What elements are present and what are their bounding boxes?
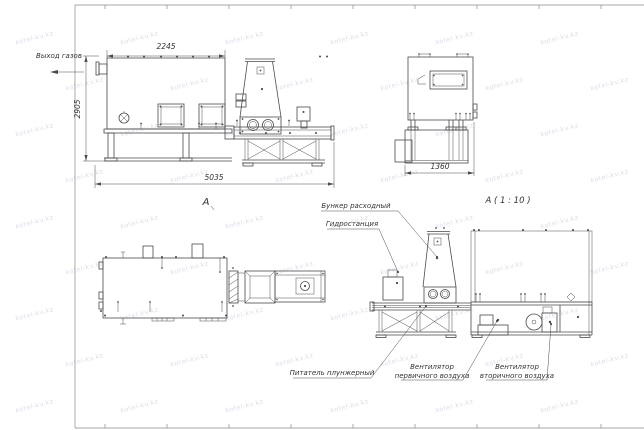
hydraulic-station <box>383 270 403 300</box>
plan-bolt-marks <box>104 256 227 324</box>
technical-drawing: Выход газов 2245 2905 5035 1360 А А ( 1 … <box>0 0 644 430</box>
feed-hopper-detail <box>423 227 456 287</box>
leader-feed-hopper <box>321 211 438 258</box>
section-a-label: А <box>202 197 210 208</box>
dimension-2905 <box>83 56 104 161</box>
feeder-channel <box>225 120 334 140</box>
sheet-frame <box>75 5 644 428</box>
plan-feeder <box>229 267 325 307</box>
feeder-housing-side <box>240 117 281 134</box>
drawing-text: Выход газов 2245 2905 5035 1360 А А ( 1 … <box>36 42 554 380</box>
section-a-tick <box>211 206 214 210</box>
feeder-housing-detail <box>424 287 456 303</box>
secondary-air-fan <box>526 307 557 332</box>
side-ports-front <box>473 104 477 118</box>
secondary-fan-label-1: Вентилятор <box>495 363 539 371</box>
hydraulic-station-label: Гидростанция <box>326 220 378 228</box>
furnace-front <box>408 57 473 120</box>
plan-left-ports <box>99 262 103 312</box>
anchor-diamond <box>567 293 575 301</box>
feed-hopper-side <box>236 59 281 117</box>
dim-2905-text: 2905 <box>73 99 82 118</box>
leader-plunger-feeder <box>293 305 427 378</box>
valve-handwheel <box>119 111 129 123</box>
primary-fan-label-2: первичного воздуха <box>395 372 470 380</box>
gas-outlet-nozzle <box>96 62 107 75</box>
window-latch <box>418 75 426 84</box>
front-side-box <box>395 140 412 162</box>
drawing-sheet: Выход газов 2245 2905 5035 1360 А А ( 1 … <box>0 0 644 430</box>
conveyor-support-frame <box>242 139 325 166</box>
hatch-door-1 <box>158 104 184 127</box>
dim-2245-text: 2245 <box>156 42 175 51</box>
dimension-2245 <box>107 50 225 58</box>
gas-outlet-arrow <box>50 70 84 74</box>
dim-5035-text: 5035 <box>204 173 223 182</box>
front-window <box>430 71 467 89</box>
plan-view <box>99 244 325 324</box>
detail-support-frame <box>376 310 456 338</box>
front-legs <box>408 113 471 130</box>
secondary-fan-label-2: вторичного воздуха <box>480 372 554 380</box>
feeder-tube-detail <box>370 302 471 311</box>
side-view <box>50 50 334 188</box>
feed-hopper-label: Бункер расходный <box>321 202 391 210</box>
hatch-door-2 <box>199 104 225 127</box>
primary-fan-label-1: Вентилятор <box>410 363 454 371</box>
detail-furnace-outline <box>471 229 592 335</box>
plan-top-ports <box>121 244 203 258</box>
drive-pedestal <box>297 107 310 128</box>
lifting-lugs <box>418 53 469 57</box>
furnace-support-frame <box>104 123 232 161</box>
detail-view-a <box>211 206 592 380</box>
front-base <box>395 130 468 163</box>
gas-outlet-label: Выход газов <box>36 52 82 60</box>
furnace-plan <box>103 258 227 318</box>
plunger-feeder-label: Питатель плунжерный <box>290 369 375 377</box>
detail-title: А ( 1 : 10 ) <box>484 196 530 206</box>
leader-hydraulic-station <box>327 229 399 273</box>
dim-1360-text: 1360 <box>430 162 449 171</box>
front-view <box>395 53 477 176</box>
